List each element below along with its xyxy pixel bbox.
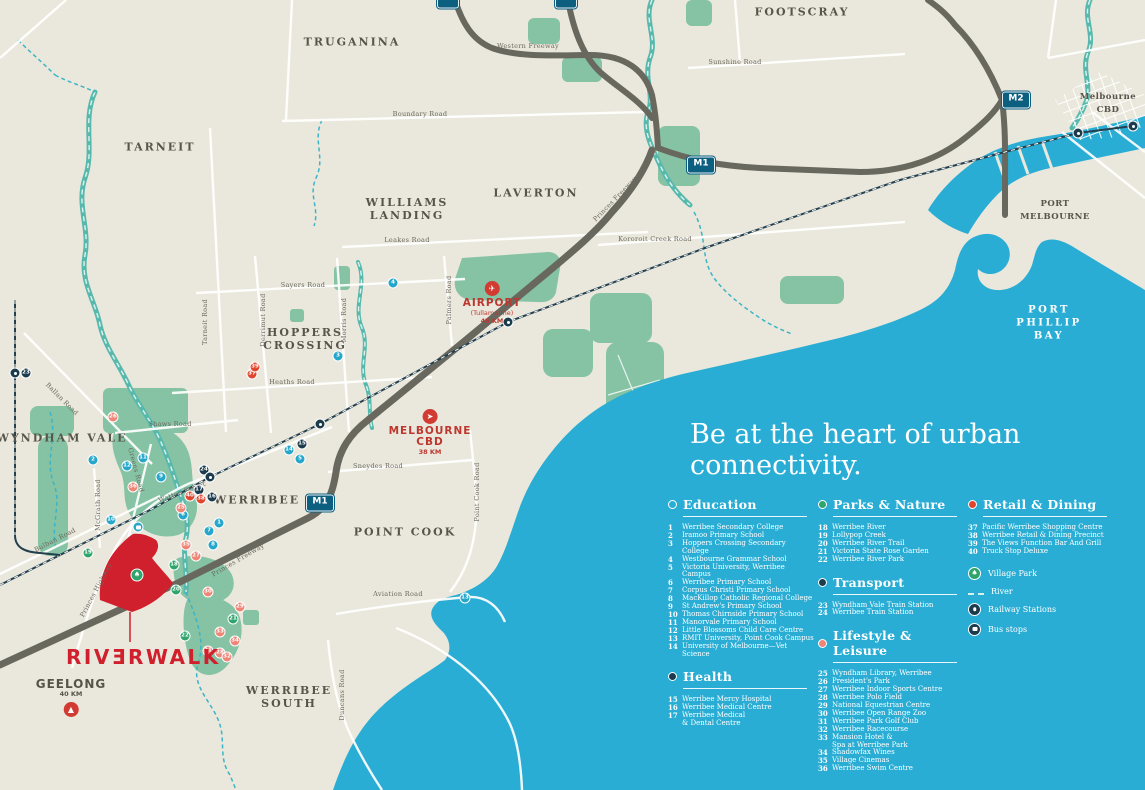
legend-symbol-village-park: ♠Village Park — [968, 567, 1114, 580]
airport-icon: ✈ — [484, 281, 499, 296]
map-marker-20: 20 — [171, 585, 182, 596]
road-label-palmers-road: Palmers Road — [445, 276, 453, 325]
legend-item-label: Werribee Train Station — [832, 609, 964, 617]
road-label-sneydes-road: Sneydes Road — [353, 462, 403, 470]
health-bullet — [668, 672, 677, 681]
legend-item-3: 3Hoppers Crossing Secondary College — [668, 540, 814, 556]
legend-section-retail: Retail & Dining37Pacific Werribee Shoppi… — [968, 497, 1114, 556]
legend-item-label: Truck Stop Deluxe — [982, 548, 1114, 556]
map-marker-1: 1 — [214, 518, 225, 529]
destination-melbourne-cbd: ➤MELBOURNE CBD38 KM — [389, 409, 472, 457]
legend-title: Parks & Nature — [833, 497, 946, 512]
road-label-sayers-road: Sayers Road — [281, 281, 326, 289]
map-marker-27: 27 — [191, 551, 202, 562]
retail-bullet — [968, 500, 977, 509]
legend-item-label: Mansion Hotel & Spa at Werribee Park — [832, 734, 964, 750]
railway-station-icon — [10, 368, 21, 379]
road-label-kororoit-creek-road: Kororoit Creek Road — [618, 235, 692, 243]
map-marker-11: 11 — [138, 453, 149, 464]
destination-name: MELBOURNE CBD — [389, 426, 472, 448]
map-marker-34: 34 — [230, 636, 241, 647]
map-marker-35: 35 — [181, 540, 192, 551]
map-marker-5: 5 — [295, 454, 306, 465]
map-marker-16: 16 — [207, 492, 218, 503]
map-marker-21: 21 — [228, 614, 239, 625]
road-label-bulban-road: Bulban Road — [33, 526, 77, 554]
legend-heading-retail: Retail & Dining — [968, 497, 1114, 512]
railway-station-icon — [315, 419, 326, 430]
bus-stop-icon — [133, 522, 144, 533]
destination-name: GEELONG — [36, 679, 107, 690]
area-label-port-phillip-bay: PORT PHILLIP BAY — [1001, 304, 1097, 343]
legend-heading-education: Education — [668, 497, 814, 512]
legend-item-number: 5 — [668, 564, 682, 580]
road-label-tarneit-road: Tarneit Road — [201, 299, 209, 345]
map-marker-9: 9 — [156, 472, 167, 483]
map-marker-26: 26 — [108, 412, 119, 423]
legend-item-number: 36 — [818, 765, 832, 773]
area-label-tarneit: TARNEIT — [124, 141, 195, 154]
area-label-wyndham-vale: WYNDHAM VALE — [0, 432, 128, 445]
road-label-aviation-road: Aviation Road — [373, 590, 423, 598]
legend-item-number: 22 — [818, 556, 832, 564]
legend-item-24: 24Werribee Train Station — [818, 609, 964, 617]
map-marker-40: 40 — [185, 491, 196, 502]
legend-title: Lifestyle & Leisure — [833, 628, 964, 658]
bus-icon — [968, 623, 981, 636]
map-marker-14: 14 — [284, 445, 295, 456]
road-label-duncans-road: Duncans Road — [338, 669, 346, 720]
map-marker-19: 19 — [83, 548, 94, 559]
area-label-port-melbourne: PORT MELBOURNE — [1010, 198, 1100, 224]
transport-bullet — [818, 578, 827, 587]
map-marker-36: 36 — [128, 482, 139, 493]
road-label-mcgrath-road: McGrath Road — [94, 479, 102, 531]
map-marker-7: 7 — [204, 526, 215, 537]
legend-item-36: 36Werribee Swim Centre — [818, 765, 964, 773]
legend-item-number: 3 — [668, 540, 682, 556]
road-label-morris-road: Morris Road — [340, 298, 348, 342]
legend-item-33: 33Mansion Hotel & Spa at Werribee Park — [818, 734, 964, 750]
legend-symbol-railway: Railway Stations — [968, 603, 1114, 616]
area-label-point-cook: POINT COOK — [354, 526, 457, 539]
legend-title: Education — [683, 497, 757, 512]
legend-heading-lifestyle: Lifestyle & Leisure — [818, 628, 964, 658]
legend-rule — [683, 688, 807, 689]
area-label-williams-landing: WILLIAMS LANDING — [366, 196, 449, 222]
village-park-icon: ♠ — [131, 569, 144, 582]
legend-title: Transport — [833, 575, 904, 590]
road-label-ballan-road: Ballan Road — [44, 381, 80, 417]
legend-item-14: 14University of Melbourne—Vet Science — [668, 643, 814, 659]
map-marker-4: 4 — [388, 278, 399, 289]
map-marker-15: 15 — [297, 439, 308, 450]
railway-station-icon — [1073, 128, 1084, 139]
area-label-hoppers-crossing: HOPPERS CROSSING — [263, 326, 347, 352]
map-marker-10: 10 — [106, 515, 117, 526]
map-marker-25: 25 — [176, 503, 187, 514]
legend-rule — [983, 516, 1107, 517]
legend-rule — [833, 662, 957, 663]
area-label-werribee: WERRIBEE — [214, 494, 300, 507]
legend-heading-parks: Parks & Nature — [818, 497, 964, 512]
railway-station-icon — [1128, 121, 1139, 132]
legend-rule — [833, 594, 957, 595]
legend-rule — [833, 516, 957, 517]
legend-item-label: Werribee Swim Centre — [832, 765, 964, 773]
legend-section-transport: Transport23Wyndham Vale Train Station24W… — [818, 575, 964, 618]
legend-item-number: 40 — [968, 548, 982, 556]
legend-section-parks: Parks & Nature18Werribee River19Lollypop… — [818, 497, 964, 564]
map-marker-39: 39 — [250, 362, 261, 373]
destination-distance: 38 KM — [389, 448, 472, 457]
road-label-princes-highway: Princes Highway — [78, 561, 113, 618]
map-marker-13: 13 — [460, 593, 471, 604]
route-shield-m2: M2 — [1002, 92, 1030, 109]
road-label-heaths-road: Heaths Road — [269, 378, 315, 386]
area-label-laverton: LAVERTON — [493, 187, 578, 200]
river-icon — [968, 593, 984, 595]
map-marker-38: 38 — [196, 494, 207, 505]
road-label-shaws-road: Shaws Road — [148, 420, 191, 428]
legend-rule — [683, 516, 807, 517]
map-marker-12: 12 — [122, 461, 133, 472]
railway-station-icon — [503, 317, 514, 328]
route-shield-m1: M1 — [306, 495, 334, 512]
map-overlay: TRUGANINATARNEITWILLIAMS LANDINGLAVERTON… — [0, 0, 1145, 790]
legend-symbol-label: Bus stops — [988, 625, 1027, 634]
legend-heading-transport: Transport — [818, 575, 964, 590]
parks-bullet — [818, 500, 827, 509]
road-label-princes-freeway: Princes Freeway — [591, 175, 638, 223]
legend-item-5: 5Victoria University, Werribee Campus — [668, 564, 814, 580]
riverwalk-logo: RIVƎRWALK — [66, 645, 221, 669]
legend-heading-health: Health — [668, 669, 814, 684]
legend-item-label: Werribee Medical & Dental Centre — [682, 712, 814, 728]
railway-station-icon — [205, 472, 216, 483]
map-marker-2: 2 — [88, 455, 99, 466]
legend-column-1: Education1Werribee Secondary College2Ira… — [668, 497, 814, 739]
legend-title: Retail & Dining — [983, 497, 1096, 512]
road-label-boundary-road: Boundary Road — [393, 110, 448, 118]
route-shield — [437, 0, 459, 9]
legend-symbol-river: River — [968, 587, 1114, 596]
legend-section-lifestyle: Lifestyle & Leisure25Wyndham Library, We… — [818, 628, 964, 773]
map-marker-22: 22 — [180, 631, 191, 642]
railway-icon — [968, 603, 981, 616]
destination-distance: 40 KM — [36, 690, 107, 699]
education-bullet — [668, 500, 677, 509]
map-marker-33: 33 — [215, 627, 226, 638]
map-marker-29: 29 — [235, 602, 246, 613]
map-marker-23: 23 — [21, 368, 32, 379]
legend-item-40: 40Truck Stop Deluxe — [968, 548, 1114, 556]
legend-column-3: Retail & Dining37Pacific Werribee Shoppi… — [968, 497, 1114, 643]
legend-symbol-bus: Bus stops — [968, 623, 1114, 636]
area-label-truganina: TRUGANINA — [304, 36, 401, 49]
legend-column-2: Parks & Nature18Werribee River19Lollypop… — [818, 497, 964, 784]
legend-item-label: University of Melbourne—Vet Science — [682, 643, 814, 659]
road-label-sunshine-road: Sunshine Road — [708, 58, 761, 66]
map-marker-32: 32 — [222, 652, 233, 663]
legend-symbol-label: River — [991, 587, 1013, 596]
legend-symbol-label: Village Park — [988, 569, 1037, 578]
location-map: TRUGANINATARNEITWILLIAMS LANDINGLAVERTON… — [0, 0, 1145, 790]
map-marker-3: 3 — [333, 351, 344, 362]
melbourne-cbd-icon: ➤ — [422, 409, 437, 424]
headline: Be at the heart of urban connectivity. — [690, 419, 1145, 481]
area-label-werribee-south: WERRIBEE SOUTH — [246, 684, 332, 710]
route-shield — [555, 0, 577, 9]
road-label-point-cook-road: Point Cook Road — [473, 462, 481, 521]
map-marker-30: 30 — [203, 587, 214, 598]
route-shield-m1: M1 — [687, 157, 715, 174]
legend-item-number: 17 — [668, 712, 682, 728]
legend-item-number: 33 — [818, 734, 832, 750]
legend-item-label: Werribee River Park — [832, 556, 964, 564]
legend-section-health: Health15Werribee Mercy Hospital16Werribe… — [668, 669, 814, 728]
destination-subtitle: (Tullamarine) — [463, 309, 522, 317]
map-marker-18: 18 — [169, 560, 180, 571]
map-marker-8: 8 — [208, 540, 219, 551]
destination-name: AIRPORT — [463, 298, 522, 309]
legend-title: Health — [683, 669, 732, 684]
legend-item-label: Hoppers Crossing Secondary College — [682, 540, 814, 556]
legend-item-number: 24 — [818, 609, 832, 617]
area-label-footscray: FOOTSCRAY — [755, 6, 850, 19]
village-park-icon: ♠ — [968, 567, 981, 580]
destination-geelong: GEELONG40 KM▲ — [36, 679, 107, 719]
road-label-princes-freeway: Princes Freeway — [210, 542, 266, 579]
legend-symbol-label: Railway Stations — [988, 605, 1056, 614]
legend-section-education: Education1Werribee Secondary College2Ira… — [668, 497, 814, 658]
legend-item-17: 17Werribee Medical & Dental Centre — [668, 712, 814, 728]
legend-item-number: 14 — [668, 643, 682, 659]
road-label-derrimut-road: Derrimut Road — [259, 293, 267, 346]
area-label-melbourne-cbd: Melbourne CBD — [1080, 91, 1136, 117]
road-label-western-freeway: Western Freeway — [497, 42, 559, 50]
legend-item-label: Victoria University, Werribee Campus — [682, 564, 814, 580]
geelong-icon: ▲ — [64, 702, 79, 717]
lifestyle-bullet — [818, 639, 827, 648]
legend-item-22: 22Werribee River Park — [818, 556, 964, 564]
road-label-leakes-road: Leakes Road — [384, 236, 429, 244]
